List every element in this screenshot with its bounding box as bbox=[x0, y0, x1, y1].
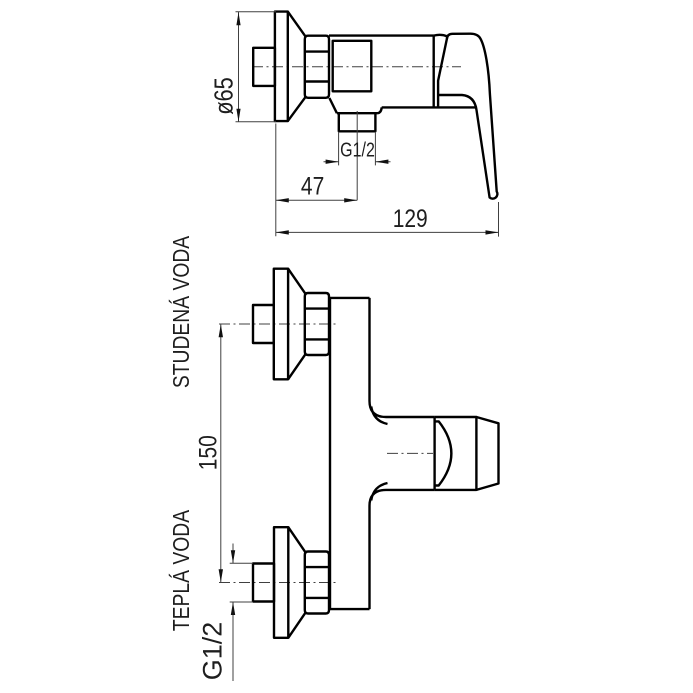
svg-text:TEPLÁ VODA: TEPLÁ VODA bbox=[167, 509, 194, 631]
svg-text:129: 129 bbox=[393, 204, 428, 232]
svg-text:150: 150 bbox=[194, 435, 222, 470]
svg-text:STUDENÁ VODA: STUDENÁ VODA bbox=[167, 235, 194, 388]
svg-text:G1/2: G1/2 bbox=[340, 139, 375, 161]
svg-text:47: 47 bbox=[301, 172, 324, 200]
svg-text:G1/2: G1/2 bbox=[198, 622, 228, 681]
svg-text:ø65: ø65 bbox=[210, 77, 239, 115]
